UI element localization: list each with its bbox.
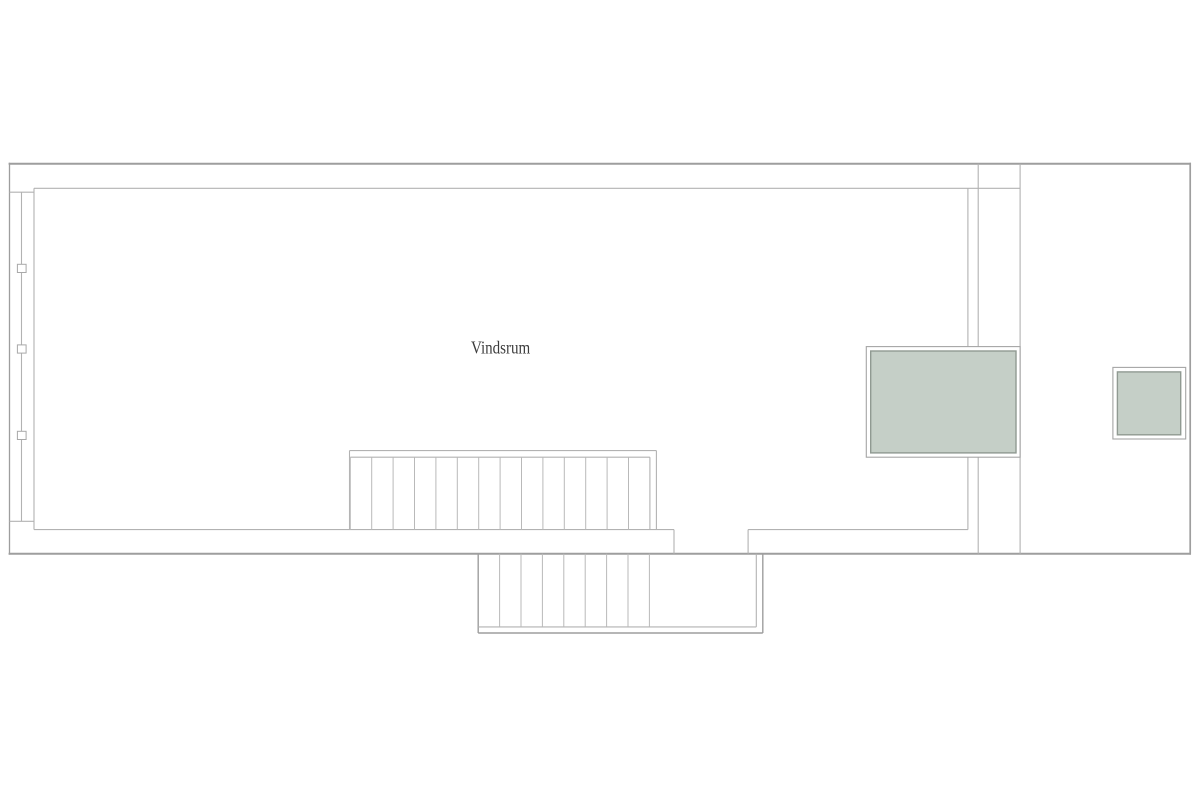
- svg-text:Vindsrum: Vindsrum: [471, 338, 530, 358]
